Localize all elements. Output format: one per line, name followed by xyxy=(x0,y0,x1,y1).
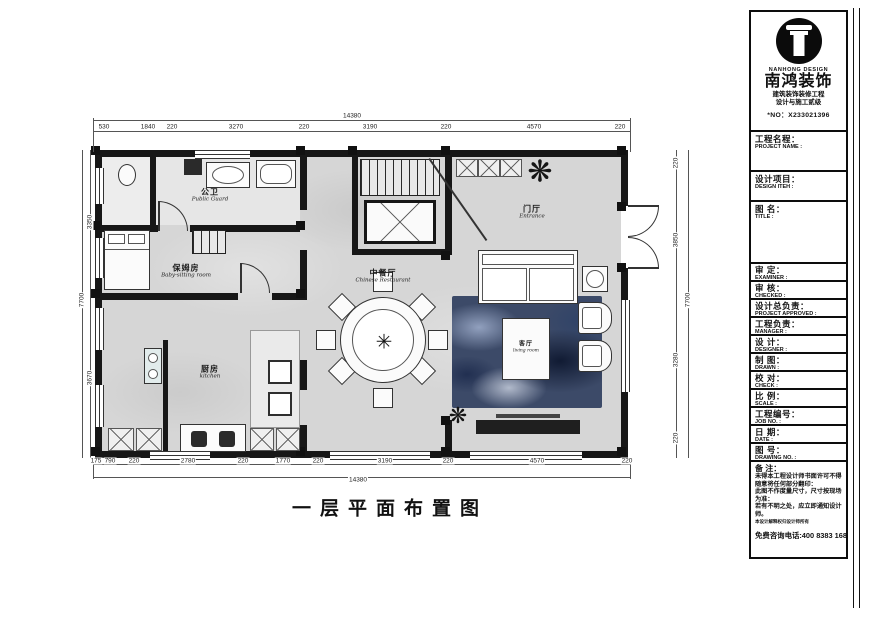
utility-sink xyxy=(144,348,162,384)
wall xyxy=(150,157,156,225)
window xyxy=(621,300,630,392)
sheet-border-line xyxy=(853,8,860,608)
column xyxy=(617,263,626,272)
wall xyxy=(163,340,168,451)
bathtub xyxy=(256,160,296,188)
dim-label: 220 xyxy=(614,124,627,131)
dim-line xyxy=(676,150,677,458)
dim-label: 14380 xyxy=(342,113,362,120)
note-line: 若有不明之处，应立即通知设计师。 xyxy=(755,503,842,518)
dim-line xyxy=(93,464,630,465)
window xyxy=(95,238,104,278)
field-label-en: SCALE : xyxy=(755,401,842,408)
column xyxy=(441,146,450,155)
logo-column-shaft xyxy=(793,35,804,56)
coffee-table xyxy=(502,318,550,380)
window xyxy=(95,308,104,350)
dining-chair xyxy=(373,272,393,292)
cabinet xyxy=(108,428,134,451)
dim-label: 7700 xyxy=(79,292,86,308)
wall xyxy=(95,157,102,168)
field-designer: 设 计： DESIGNER : xyxy=(751,336,846,354)
column xyxy=(617,146,626,155)
brand-name-cn: 南鸿装饰 xyxy=(755,73,842,91)
side-table-top xyxy=(586,270,604,288)
field-label-en: MANAGER : xyxy=(755,329,842,336)
hall-cabinet xyxy=(500,159,522,177)
field-label-cn: 工程负责： xyxy=(755,319,842,329)
column xyxy=(296,146,305,155)
field-label-cn: 图 号： xyxy=(755,445,842,455)
field-job-no: 工程编号： JOB NO. : xyxy=(751,408,846,426)
drawing-title: 一层平面布置图 xyxy=(292,494,488,521)
window xyxy=(95,385,104,427)
vanity-sink xyxy=(206,162,250,188)
notes-heading: 备 注： xyxy=(755,464,842,473)
logo-column-abacus xyxy=(790,31,808,35)
field-label-en: EXAMINER : xyxy=(755,275,842,282)
field-label-en: CHECK : xyxy=(755,383,842,390)
title-block: NANHONG DESIGN 南鸿装饰 建筑装饰装修工程 设计与施工贰级 *NO… xyxy=(749,10,848,559)
field-check: 校 对： CHECK : xyxy=(751,372,846,390)
sink-basin xyxy=(212,166,244,184)
field-label-en: DRAWING NO. : xyxy=(755,455,842,462)
field-design-item: 设计项目： DESIGN ITEH : xyxy=(751,172,846,202)
palm-plant-icon: ❋ xyxy=(527,155,552,190)
hotline: 免费咨询电话:400 8383 168 xyxy=(755,530,842,541)
tv-cabinet xyxy=(476,420,580,434)
dim-label: 220 xyxy=(128,458,141,465)
wall xyxy=(352,249,452,255)
dim-line xyxy=(93,131,630,132)
dim-label: 220 xyxy=(442,458,455,465)
basement-stairs xyxy=(192,230,226,254)
floor-plant-icon: ❋ xyxy=(449,403,467,429)
field-label-en: CHECKED : xyxy=(755,293,842,300)
sofa-cushion xyxy=(529,268,574,301)
pillow xyxy=(128,234,145,244)
field-label-cn: 比 例： xyxy=(755,391,842,401)
dim-label: 2780 xyxy=(180,458,196,465)
field-checked: 审 核： CHECKED : xyxy=(751,282,846,300)
wall xyxy=(95,150,195,157)
wall xyxy=(621,392,628,451)
dining-table: ✳ xyxy=(340,297,426,383)
cabinet xyxy=(276,428,300,451)
dim-ext-line xyxy=(93,118,94,152)
dim-label: 530 xyxy=(98,124,111,131)
field-drawn: 制 图： DRAWN : xyxy=(751,354,846,372)
column xyxy=(617,202,626,211)
drawing-sheet: ✳ ❋ ❋ 公卫Public Guard 保姆房Baby-sitting roo… xyxy=(0,0,895,633)
column xyxy=(296,289,305,298)
armchair-cushion xyxy=(582,307,602,329)
bathtub-inner xyxy=(260,164,292,184)
brand-line2: 设计与施工贰级 xyxy=(755,99,842,107)
field-label-en: DATE : xyxy=(755,437,842,444)
pillow xyxy=(108,234,125,244)
dining-chair xyxy=(373,388,393,408)
stove xyxy=(180,424,246,452)
field-label-cn: 工程编号： xyxy=(755,409,842,419)
dining-chair xyxy=(428,330,448,350)
sofa-back xyxy=(482,254,574,265)
dim-label: 220 xyxy=(440,124,453,131)
field-scale: 比 例： SCALE : xyxy=(751,390,846,408)
sofa xyxy=(478,250,578,304)
blanket-line xyxy=(105,249,149,250)
side-table xyxy=(582,266,608,292)
dim-label: 3190 xyxy=(377,458,393,465)
door-swing-arc xyxy=(628,206,659,237)
window xyxy=(195,150,250,159)
column xyxy=(441,251,450,260)
dim-label: 220 xyxy=(312,458,325,465)
note-line: 未得本工程设计师书面许可不得随意将任何部分翻印： xyxy=(755,473,842,488)
staircase xyxy=(360,159,440,196)
wall xyxy=(102,293,238,300)
dim-label: 1770 xyxy=(275,458,291,465)
column xyxy=(617,447,626,456)
table-centerpiece-icon: ✳ xyxy=(376,330,393,355)
wall-oven xyxy=(268,392,292,416)
field-project-approved: 设计总负责： PROJECT APPROVED : xyxy=(751,300,846,318)
burner xyxy=(219,431,235,447)
field-label-cn: 制 图： xyxy=(755,355,842,365)
sink-bowl xyxy=(148,369,158,379)
dim-label: 3850 xyxy=(673,232,680,248)
tv xyxy=(496,414,560,418)
door-swing-arc xyxy=(628,237,659,268)
wall xyxy=(300,360,307,390)
field-label-cn: 审 定： xyxy=(755,265,842,275)
wall xyxy=(300,157,307,210)
dining-chair xyxy=(316,330,336,350)
column xyxy=(91,289,100,298)
cabinet xyxy=(250,428,274,451)
field-drawing-no: 图 号： DRAWING NO. : xyxy=(751,444,846,462)
field-label-cn: 设计项目： xyxy=(755,174,842,184)
field-manager: 工程负责： MANAGER : xyxy=(751,318,846,336)
brand-line1: 建筑装饰装修工程 xyxy=(755,91,842,99)
field-label-cn: 设 计： xyxy=(755,337,842,347)
field-project-name: 工程名程： PROJECT NAME : xyxy=(751,132,846,172)
nanhong-logo-icon xyxy=(776,18,822,64)
armchair-cushion xyxy=(582,345,602,367)
field-label-cn: 审 核： xyxy=(755,283,842,293)
brand-license-no: *NO：X233021396 xyxy=(755,109,842,119)
armchair xyxy=(578,340,612,372)
field-label-cn: 校 对： xyxy=(755,373,842,383)
dim-label: 14380 xyxy=(348,477,368,484)
bed xyxy=(104,230,150,290)
dim-label: 790 xyxy=(104,458,117,465)
dim-ext-line xyxy=(630,118,631,152)
dim-label: 175 xyxy=(90,458,103,465)
dim-label: 220 xyxy=(166,124,179,131)
cabinet xyxy=(136,428,162,451)
wall xyxy=(95,350,102,385)
washer xyxy=(184,159,202,175)
field-label-en: DESIGN ITEH : xyxy=(755,184,842,191)
field-label-cn: 日 期： xyxy=(755,427,842,437)
dim-line xyxy=(93,120,630,121)
column xyxy=(348,146,357,155)
wall xyxy=(621,268,628,300)
field-date: 日 期： DATE : xyxy=(751,426,846,444)
burner xyxy=(191,431,207,447)
dim-label: 1840 xyxy=(140,124,156,131)
field-title: 图 名： TITLE : xyxy=(751,202,846,264)
dim-label: 3280 xyxy=(673,352,680,368)
field-label-cn: 设计总负责： xyxy=(755,301,842,311)
window xyxy=(470,451,582,460)
column xyxy=(91,447,100,456)
field-examiner: 审 定： EXAMINER : xyxy=(751,264,846,282)
dim-label: 220 xyxy=(673,432,680,445)
field-label-cn: 图 名： xyxy=(755,204,842,214)
logo-column-capital xyxy=(786,25,812,30)
dim-label: 3350 xyxy=(87,214,94,230)
hall-cabinet xyxy=(456,159,478,177)
sofa-cushion xyxy=(482,268,527,301)
column xyxy=(296,221,305,230)
dim-line xyxy=(90,150,91,458)
field-label-en: DESIGNER : xyxy=(755,347,842,354)
dim-label: 4570 xyxy=(529,458,545,465)
dim-label: 7700 xyxy=(685,292,692,308)
note-copyright: 本设计解释权归设计师所有 xyxy=(755,519,842,525)
dim-label: 3270 xyxy=(228,124,244,131)
wall xyxy=(352,157,358,249)
wall-oven xyxy=(268,360,292,384)
field-label-en: PROJECT APPROVED : xyxy=(755,311,842,318)
dim-label: 220 xyxy=(621,458,634,465)
dim-label: 3190 xyxy=(362,124,378,131)
field-label-en: TITLE : xyxy=(755,214,842,221)
toilet xyxy=(118,164,136,186)
wall xyxy=(445,157,452,255)
field-label-en: DRAWN : xyxy=(755,365,842,372)
note-line: 此图不作度量尺寸，尺寸按现场为准： xyxy=(755,488,842,503)
sink-bowl xyxy=(148,353,158,363)
dim-label: 220 xyxy=(673,157,680,170)
hall-cabinet xyxy=(478,159,500,177)
dim-label: 220 xyxy=(298,124,311,131)
logo-cell: NANHONG DESIGN 南鸿装饰 建筑装饰装修工程 设计与施工贰级 *NO… xyxy=(751,12,846,132)
wall xyxy=(250,150,628,157)
elevator-shaft xyxy=(364,200,436,244)
field-label-en: PROJECT NAME : xyxy=(755,144,842,151)
wall xyxy=(621,157,628,206)
dim-label: 4570 xyxy=(526,124,542,131)
field-label-cn: 工程名程： xyxy=(755,134,842,144)
dim-label: 220 xyxy=(237,458,250,465)
armchair xyxy=(578,302,612,334)
notes-cell: 备 注： 未得本工程设计师书面许可不得随意将任何部分翻印： 此图不作度量尺寸，尺… xyxy=(751,462,846,557)
dim-label: 3670 xyxy=(87,370,94,386)
column xyxy=(441,447,450,456)
field-label-en: JOB NO. : xyxy=(755,419,842,426)
window xyxy=(95,168,104,204)
